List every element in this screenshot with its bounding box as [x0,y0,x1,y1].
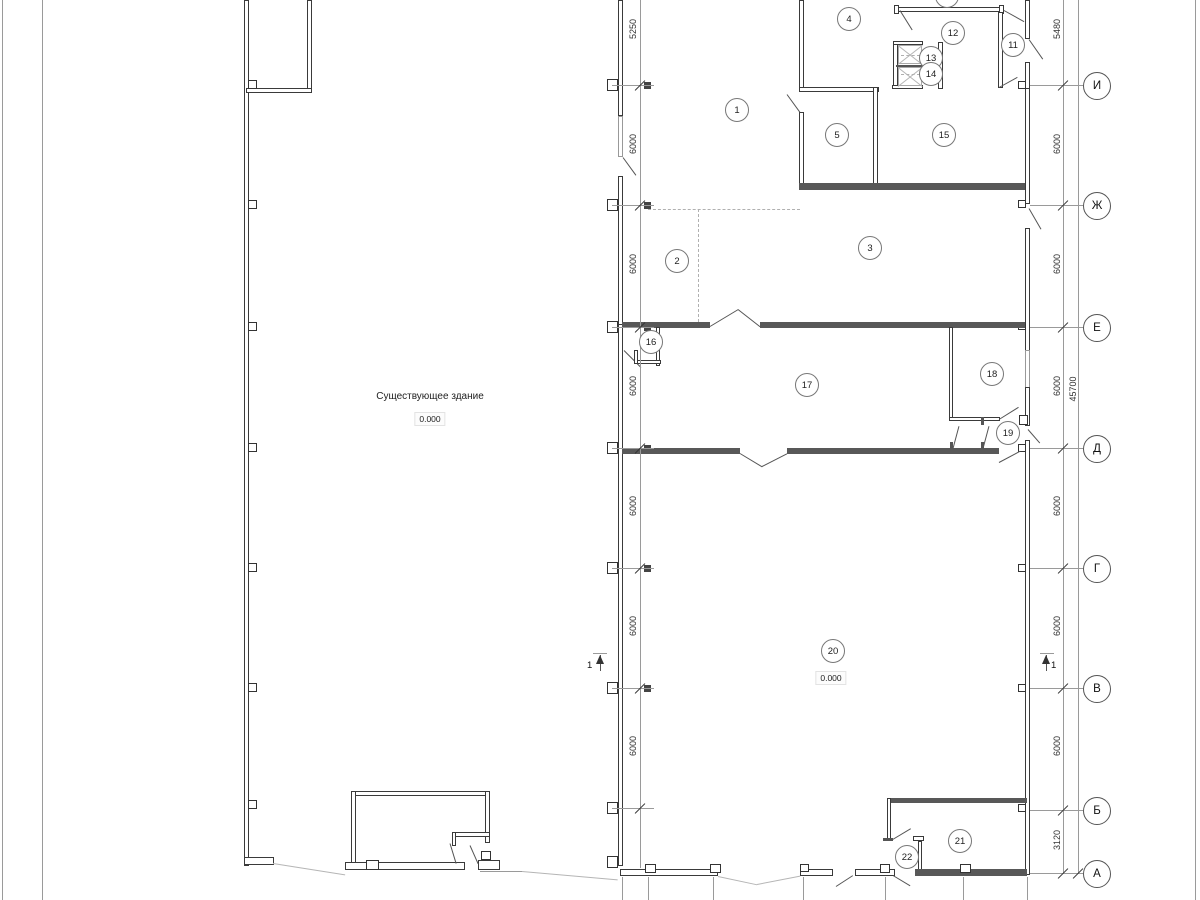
door-leaf [1004,10,1025,22]
wall-segment [799,183,1027,190]
section-mark [593,653,607,654]
room-number-circle: 3 [858,236,882,260]
wall-segment [351,791,356,868]
wall-segment [799,87,879,92]
wall-segment [244,857,274,865]
apron-line [522,871,618,880]
dimension-label: 6000 [1052,484,1062,528]
gate-leaf [740,453,763,467]
dimension-line [1078,0,1079,873]
section-arrow-icon [596,655,604,664]
extension-line [1030,448,1083,449]
wall-segment [760,322,1025,328]
room-number-circle: 12 [941,21,965,45]
wall-segment [351,791,490,796]
column-marker [248,322,257,331]
wall-segment [1025,0,1030,39]
floor-plan: 5250 6000 6000 6000 6000 6000 6000 5480 … [0,0,1200,900]
extension-line [1030,688,1083,689]
column-marker [248,443,257,452]
room-number-circle: 19 [996,421,1020,445]
extension-line [612,688,654,689]
gate-leaf [738,309,761,327]
threshold-line [718,876,757,885]
dimension-label-total: 45700 [1068,367,1078,411]
dimension-label: 6000 [1052,242,1062,286]
extension-line [612,808,654,809]
wall-segment [244,0,249,866]
column-marker [248,200,257,209]
extension-line [1030,810,1083,811]
dimension-label: 6000 [628,724,638,768]
dimension-label: 6000 [628,484,638,528]
wall-segment [799,0,804,91]
room-number-circle: 16 [639,330,663,354]
frame-line [42,0,43,900]
extension-line [648,877,649,900]
door-leaf [999,451,1021,463]
door-leaf [891,828,911,841]
extension-line [1030,205,1083,206]
dimension-label: 6000 [1052,364,1062,408]
wall-segment [898,7,1004,12]
extension-line [1027,877,1028,900]
wall-segment [618,0,623,116]
dimension-label: 6000 [1052,724,1062,768]
wall-segment [887,798,1027,803]
column-marker [960,864,971,873]
wall-segment [949,417,1000,421]
extension-line [612,327,654,328]
apron-line [480,871,522,872]
wall-segment [873,87,878,186]
wall-segment [452,832,456,846]
gate-leaf [762,453,787,467]
frame-line [1195,0,1196,900]
extension-line [885,877,886,900]
frame-line [2,0,3,900]
extension-line [803,877,804,900]
axis-bubble: Б [1083,797,1111,825]
column-marker [248,80,257,89]
dimension-label: 6000 [1052,122,1062,166]
room-number-circle: 5 [825,123,849,147]
wall-segment [634,350,638,364]
axis-bubble: А [1083,860,1111,888]
section-label: 1 [1051,660,1056,671]
extension-line [612,85,654,86]
dimension-label: 5250 [628,7,638,51]
dimension-line [640,0,641,868]
room-number-circle: 18 [980,362,1004,386]
door-leaf [1029,208,1042,229]
apron-line [273,863,345,875]
extension-line [612,568,654,569]
wall-segment [1025,88,1030,204]
column-marker [248,683,257,692]
door-leaf [900,10,913,30]
door-leaf [836,875,853,887]
threshold-line [757,876,800,885]
wall-segment [307,0,312,92]
dimension-label: 5480 [1052,7,1062,51]
door-leaf [787,94,801,112]
column-marker [481,851,491,860]
axis-bubble: Е [1083,314,1111,342]
wall-segment [634,360,661,364]
wall-segment [620,869,718,876]
gate-leaf [710,309,739,327]
dimension-label: 6000 [628,604,638,648]
wall-segment [787,448,999,454]
dimension-label: 6000 [628,364,638,408]
column-marker [1018,804,1026,812]
door-leaf [983,426,990,448]
extension-line [963,877,964,900]
dimension-label: 6000 [628,122,638,166]
dimension-label: 3120 [1052,818,1062,862]
room-number-circle: 22 [895,845,919,869]
wall-segment [345,862,465,870]
room-number-circle: 2 [665,249,689,273]
wall-segment [618,176,623,325]
wall-segment [1025,228,1030,351]
door-leaf [1029,39,1044,59]
wall-segment [915,869,1027,876]
section-mark [1040,653,1054,654]
axis-bubble: Д [1083,435,1111,463]
column-marker [366,860,379,870]
column-marker [880,864,890,873]
wall-segment [799,112,804,186]
extension-line [1030,85,1083,86]
wall-segment [894,5,899,14]
room-number-circle: 14 [919,62,943,86]
building-label: Существующее здание [376,391,484,402]
room-number-circle: 21 [948,829,972,853]
window [618,116,623,157]
axis-bubble: В [1083,675,1111,703]
wall-segment [618,324,623,866]
wall-segment [887,798,891,841]
extension-line [612,205,654,206]
extension-line [1030,568,1083,569]
column-marker [800,864,809,872]
window [1025,350,1030,388]
column-marker [645,864,656,873]
extension-line [713,877,714,900]
door-leaf [893,875,911,886]
column-marker [248,563,257,572]
axis-bubble: Г [1083,555,1111,583]
column-marker [1018,200,1026,208]
wall-segment [478,860,500,870]
room-number-circle: 20 [821,639,845,663]
room-number-circle: 1 [725,98,749,122]
column-marker [710,864,721,873]
column-marker [248,800,257,809]
extension-line [612,448,654,449]
wall-segment [452,832,490,837]
dimension-label: 6000 [1052,604,1062,648]
room-number-circle: 11 [1001,33,1025,57]
leader-line [901,55,920,56]
room-number-circle: 15 [932,123,956,147]
room-number-circle: 17 [795,373,819,397]
elevation-mark: 0.000 [414,412,445,426]
zone-boundary-dashed [648,209,800,210]
door-leaf [953,426,960,448]
zone-boundary-dashed [698,209,699,322]
column-marker [1019,415,1028,425]
door-leaf [470,845,479,864]
column-marker [607,856,618,868]
door-leaf [450,843,457,863]
axis-bubble: Ж [1083,192,1111,220]
room-number-circle: 4 [837,7,861,31]
extension-line [1030,327,1083,328]
wall-segment [949,327,953,421]
column-marker [1018,684,1026,692]
dimension-line [1063,0,1064,873]
column-marker [1018,564,1026,572]
dimension-label: 6000 [628,242,638,286]
axis-bubble: И [1083,72,1111,100]
door-jamb [981,417,984,425]
leader-line [901,74,920,75]
door-leaf [999,407,1019,420]
elevation-mark: 0.000 [815,671,846,685]
section-arrow-icon [1042,655,1050,664]
section-label: 1 [587,660,592,671]
extension-line [622,877,623,900]
column-marker [1018,81,1026,89]
